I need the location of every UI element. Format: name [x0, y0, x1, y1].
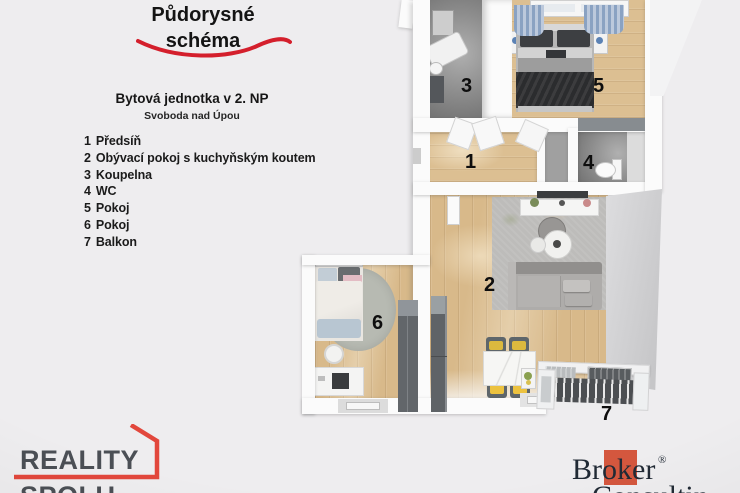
legend-item-7: 7Balkon [84, 234, 316, 251]
duvet-mid [518, 58, 592, 72]
room-label-2: 2 [484, 275, 495, 295]
lamp [596, 37, 603, 44]
balcony-right-post [632, 372, 649, 411]
duvet [316, 281, 362, 323]
cabinet-line [431, 356, 447, 357]
toilet-bowl [595, 162, 616, 178]
single-bed [315, 261, 363, 341]
wardrobe-seam [407, 316, 408, 412]
threshold-step [346, 402, 380, 410]
room-legend: 1Předsíň 2Obývací pokoj s kuchyňským kou… [84, 133, 316, 251]
wall-room6-left [302, 255, 315, 414]
wall-horizontal-lower [413, 182, 647, 195]
bed-foot [518, 106, 592, 112]
sofa-pillow [565, 294, 592, 306]
chair [324, 344, 344, 364]
balcony-side-glass [541, 376, 552, 402]
coffee-table-small [530, 237, 546, 253]
legend-item-3: 3Koupelna [84, 167, 316, 184]
room-label-6: 6 [372, 313, 383, 333]
door-threshold-room6 [338, 399, 388, 413]
bathroom-sink [429, 62, 443, 75]
chair-seat [512, 341, 526, 350]
broker-consulting-logo: Broker ® Consulting [570, 448, 710, 493]
desk-item [318, 376, 325, 381]
laptop [332, 373, 349, 389]
wall-room6-top [302, 255, 430, 265]
tv-sideboard [520, 199, 599, 216]
pillow-dark [557, 30, 590, 47]
sofa [508, 262, 602, 310]
washing-machine [432, 10, 454, 36]
room-label-1: 1 [465, 152, 476, 172]
double-bed [516, 24, 594, 112]
room-label-3: 3 [461, 76, 472, 96]
chair-seat [489, 341, 503, 350]
wall-face-topright [650, 0, 702, 96]
room-label-7: 7 [601, 404, 612, 424]
reality-wordmark: REALITY [20, 447, 139, 474]
plant [524, 372, 532, 380]
wc-floor-highlight [627, 130, 645, 182]
pillow-light [318, 268, 337, 282]
legend-item-6: 6Pokoj [84, 217, 316, 234]
desk [313, 367, 364, 396]
wall-between-3-5 [482, 0, 512, 118]
dark-blanket [516, 72, 594, 108]
sofa-armrest [508, 262, 516, 310]
room-label-5: 5 [593, 76, 604, 96]
curtain-right [584, 5, 624, 34]
unit-subtitle: Bytová jednotka v 2. NP [66, 90, 318, 107]
sofa-back [508, 262, 602, 274]
legend-item-4: 4WC [84, 183, 316, 200]
wardrobe-top [398, 300, 418, 316]
title-line1: Půdorysné [118, 2, 288, 28]
legend-item-2: 2Obývací pokoj s kuchyňským koutem [84, 150, 316, 167]
curtain-left [514, 5, 544, 36]
hall-niche-floor [545, 130, 568, 182]
consulting-wordmark: Consulting [592, 482, 710, 493]
legend-item-5: 5Pokoj [84, 200, 316, 217]
plant [530, 198, 539, 207]
tv [537, 191, 588, 198]
location-text: Svoboda nad Úpou [66, 109, 318, 123]
plant-pot [521, 368, 536, 389]
floorplan-poster: Půdorysné schéma Bytová jednotka v 2. NP… [0, 0, 740, 493]
reality-spolu-logo: REALITY SPOLU [13, 424, 173, 493]
legend-item-1: 1Předsíň [84, 133, 316, 150]
sofa-seat [518, 276, 561, 307]
balcony-left-post [536, 369, 555, 410]
room-label-4: 4 [583, 153, 594, 173]
coffee-table-white [543, 230, 572, 259]
cabinet-edge [445, 296, 447, 412]
spolu-wordmark: SPOLU [20, 483, 116, 493]
bathroom-vanity [429, 76, 444, 103]
wall-face-living-right [606, 189, 662, 390]
balcony [536, 361, 650, 414]
decor-item [559, 200, 565, 206]
kitchen-cabinet-column [431, 296, 447, 412]
title-line2: schéma [118, 28, 288, 54]
plant [526, 380, 531, 385]
nightstand-right [592, 31, 608, 54]
subtitle-block: Bytová jednotka v 2. NP Svoboda nad Úpou [66, 90, 318, 123]
sofa-pillow [563, 280, 590, 292]
door-leaf [447, 196, 460, 225]
wc-lintel [578, 118, 645, 131]
wall-hall-niche-right [568, 128, 578, 185]
registered-mark: ® [658, 454, 666, 466]
wardrobe [398, 300, 418, 412]
page-title: Půdorysné schéma [118, 2, 288, 54]
table-plant [553, 240, 561, 248]
plant [583, 199, 591, 207]
blue-throw [317, 319, 361, 338]
entry-door-notch [413, 148, 421, 164]
